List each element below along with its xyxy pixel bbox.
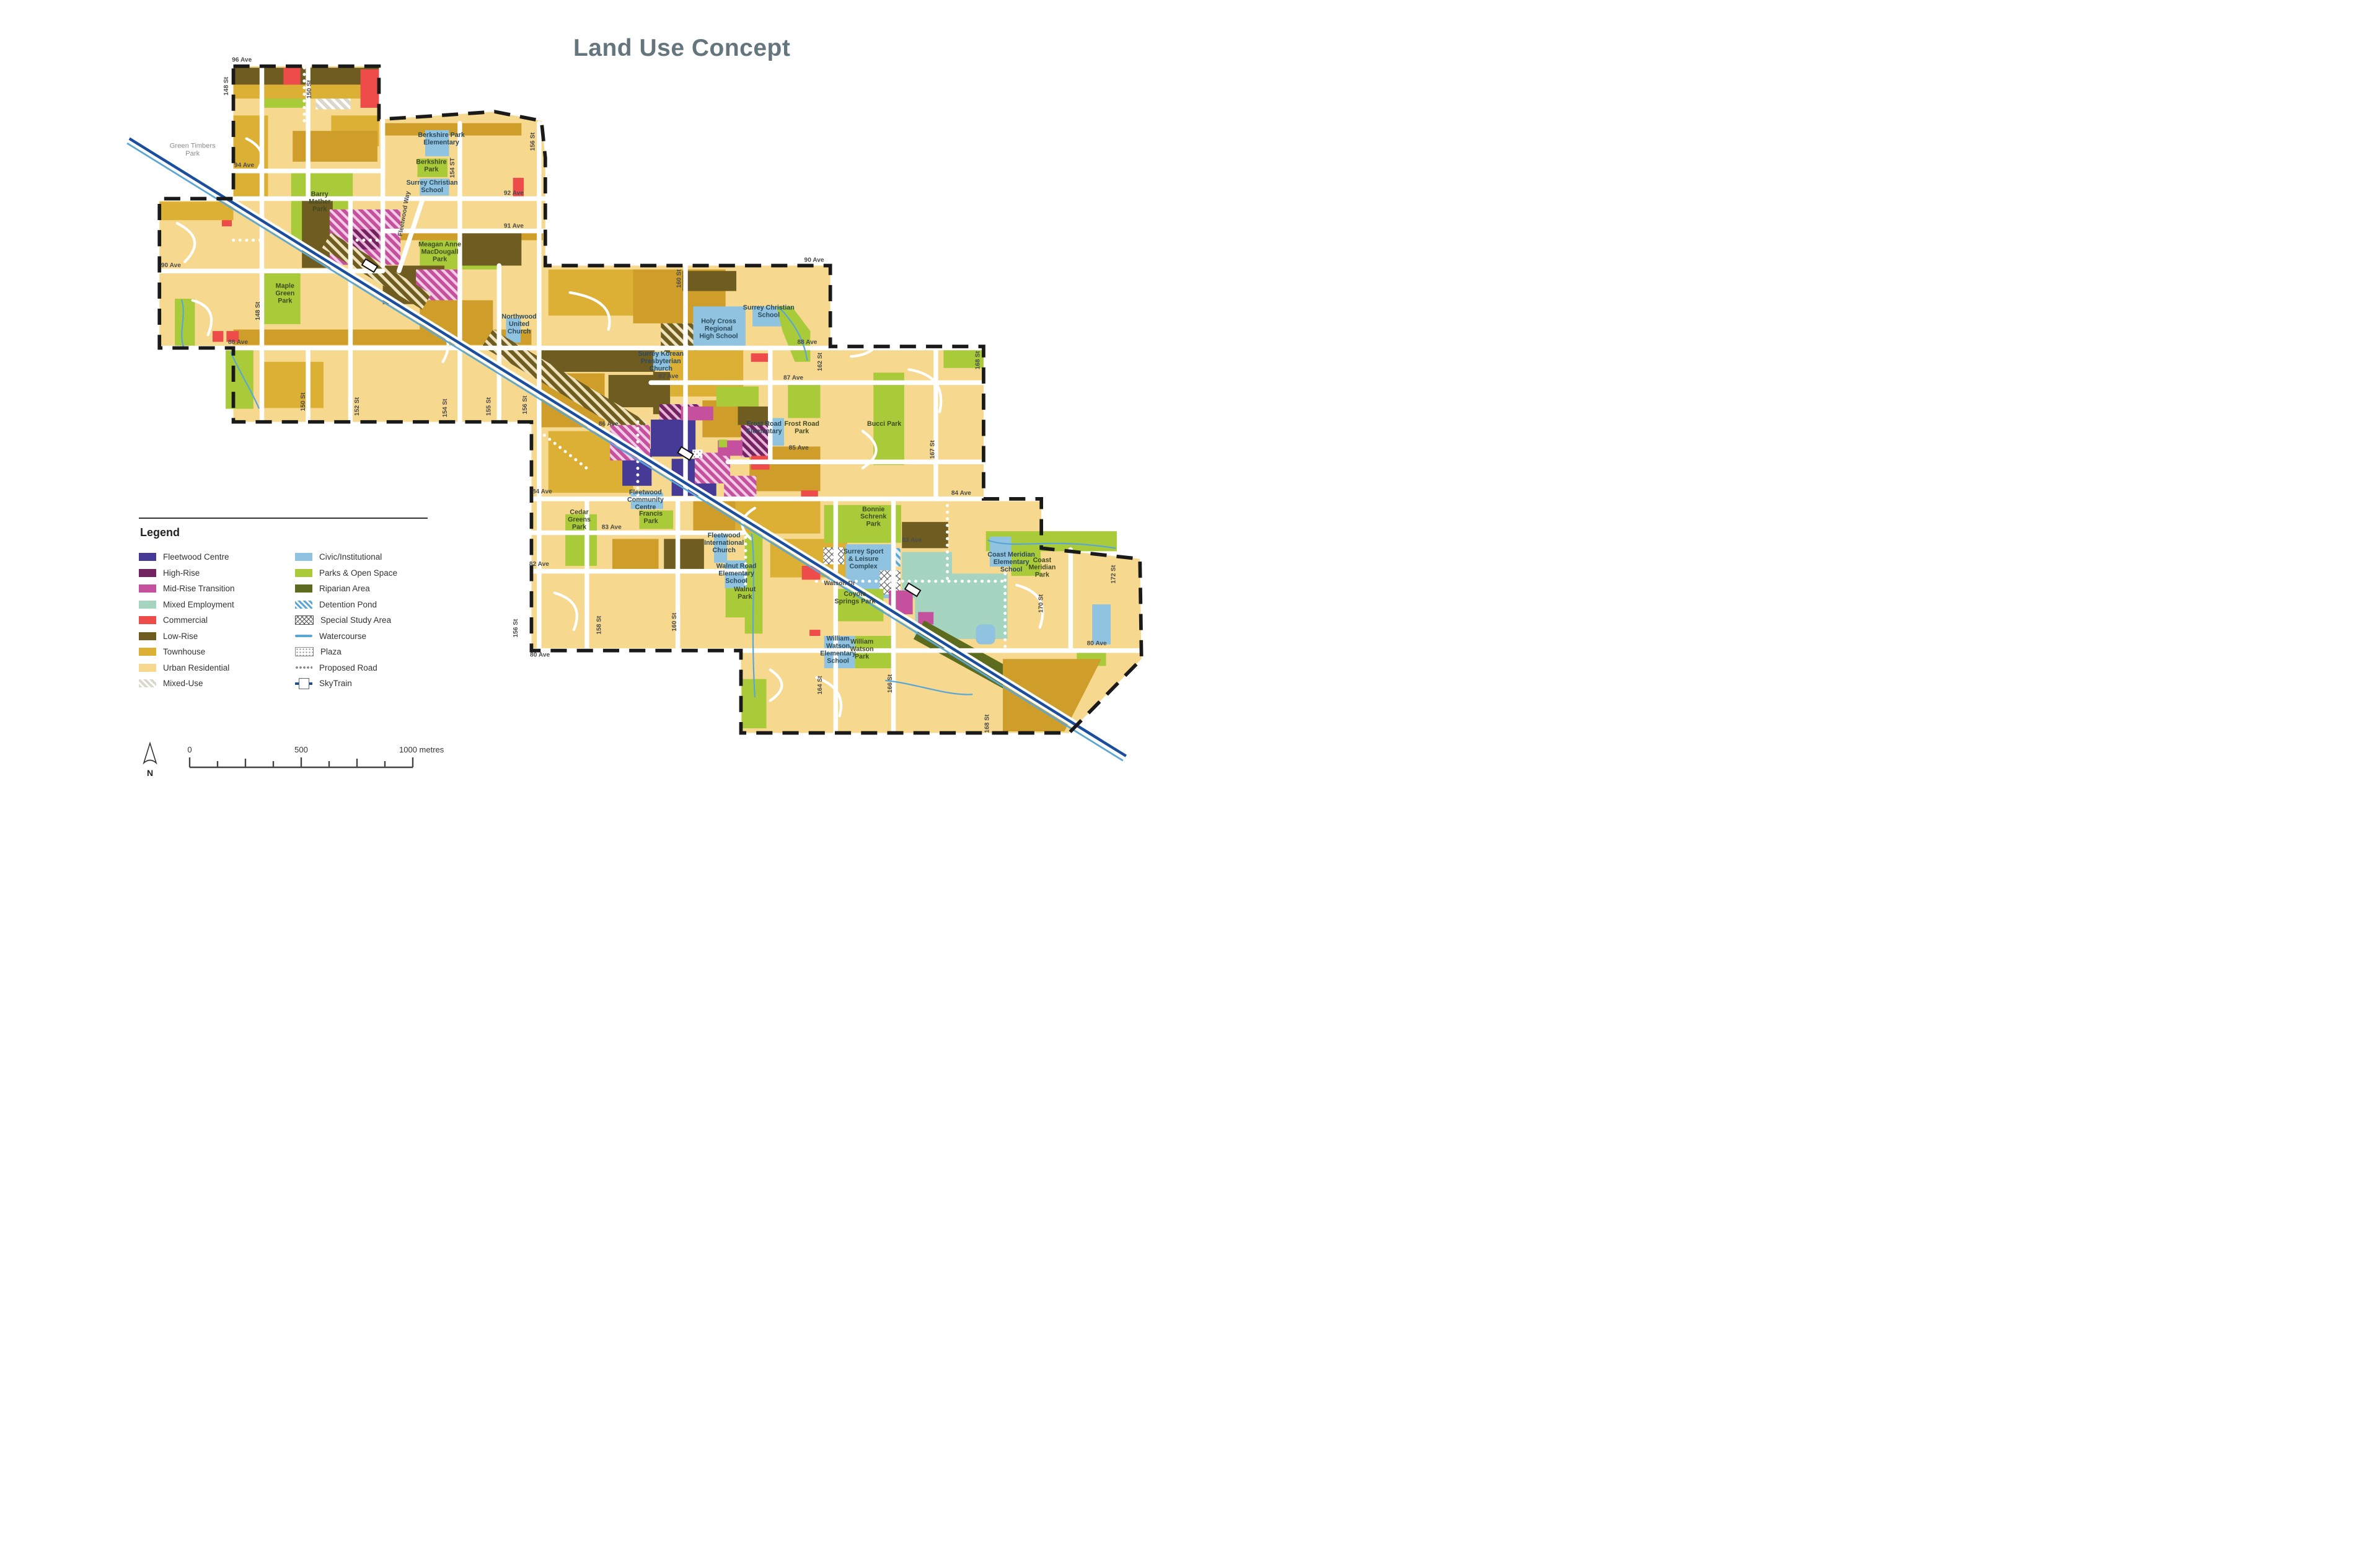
legend-label: Low-Rise bbox=[163, 632, 198, 641]
special-study-area-swatch-icon bbox=[295, 615, 314, 625]
legend-item-mixed-use: Mixed-Use bbox=[139, 676, 295, 692]
legend-title: Legend bbox=[140, 526, 428, 539]
parks-open-space-swatch-icon bbox=[295, 569, 312, 577]
street-label-156-st: 156 St bbox=[522, 395, 529, 415]
skytrain-swatch-icon bbox=[295, 679, 312, 687]
legend: Legend Fleetwood CentreHigh-RiseMid-Rise… bbox=[139, 518, 428, 692]
legend-item-fleetwood-centre: Fleetwood Centre bbox=[139, 549, 295, 565]
legend-label: Watercourse bbox=[319, 632, 366, 641]
legend-label: High-Rise bbox=[163, 568, 200, 578]
street-label-164-st: 164 St bbox=[817, 676, 824, 695]
commercial-swatch-icon bbox=[139, 616, 156, 624]
legend-label: Detention Pond bbox=[319, 600, 377, 609]
map-label-berkshire-park-elementary: Berkshire ParkElementary bbox=[418, 131, 464, 146]
legend-label: Fleetwood Centre bbox=[163, 552, 229, 562]
mid-rise-transition-swatch-icon bbox=[139, 584, 156, 593]
legend-item-special-study-area: Special Study Area bbox=[295, 612, 428, 628]
low-rise-swatch-icon bbox=[139, 632, 156, 640]
street-label-82-ave: 82 Ave bbox=[529, 561, 549, 568]
legend-label: Plaza bbox=[320, 647, 342, 656]
legend-label: Mid-Rise Transition bbox=[163, 584, 235, 593]
high-rise-swatch-icon bbox=[139, 569, 156, 577]
mixed-employment-swatch-icon bbox=[139, 601, 156, 609]
street-label-155-st: 155 St bbox=[486, 397, 493, 416]
legend-item-proposed-road: Proposed Road bbox=[295, 660, 428, 676]
street-label-83-ave: 83 Ave bbox=[902, 537, 922, 544]
street-label-92-ave: 92 Ave bbox=[504, 190, 524, 196]
legend-item-high-rise: High-Rise bbox=[139, 565, 295, 581]
legend-item-urban-residential: Urban Residential bbox=[139, 660, 295, 676]
street-label-84-ave: 84 Ave bbox=[532, 488, 552, 495]
legend-label: Parks & Open Space bbox=[319, 568, 397, 578]
street-label-85-ave: 85 Ave bbox=[789, 444, 809, 451]
page: Land Use Concept bbox=[0, 0, 1190, 782]
detention-pond-swatch-icon bbox=[295, 601, 312, 609]
street-label-160-st: 160 St bbox=[671, 612, 678, 632]
street-label-152-st: 152 St bbox=[354, 397, 361, 416]
street-label-156-st: 156 St bbox=[529, 132, 536, 151]
street-label-88-ave: 88 Ave bbox=[228, 339, 248, 346]
street-label-94-ave: 94 Ave bbox=[234, 162, 254, 169]
street-label-90-ave: 90 Ave bbox=[804, 257, 824, 263]
street-label-87-ave: 87 Ave bbox=[659, 373, 679, 380]
legend-label: Urban Residential bbox=[163, 663, 229, 672]
street-label-158-st: 158 St bbox=[596, 615, 602, 635]
scale-mid-label: 500 bbox=[294, 745, 308, 754]
north-label: N bbox=[138, 768, 162, 778]
riparian-area-swatch-icon bbox=[295, 584, 312, 593]
legend-item-civic-institutional: Civic/Institutional bbox=[295, 549, 428, 565]
proposed-road-swatch-icon bbox=[295, 666, 312, 669]
street-label-150-st: 150 St bbox=[300, 392, 307, 412]
skytrain-station-symbol-icon bbox=[299, 678, 309, 689]
scale-bar: N 0 500 1000 metres bbox=[138, 741, 485, 781]
legend-label: Civic/Institutional bbox=[319, 552, 382, 562]
legend-item-parks-open-space: Parks & Open Space bbox=[295, 565, 428, 581]
legend-label: Commercial bbox=[163, 615, 208, 625]
street-label-167-st: 167 St bbox=[929, 440, 936, 459]
legend-column-left: Fleetwood CentreHigh-RiseMid-Rise Transi… bbox=[139, 549, 295, 692]
legend-label: Riparian Area bbox=[319, 584, 370, 593]
legend-item-detention-pond: Detention Pond bbox=[295, 597, 428, 613]
urban-residential-swatch-icon bbox=[139, 664, 156, 672]
street-label-148-st: 148 St bbox=[255, 301, 262, 320]
legend-label: Townhouse bbox=[163, 647, 205, 656]
legend-item-low-rise: Low-Rise bbox=[139, 628, 295, 645]
street-label-88-ave: 88 Ave bbox=[797, 339, 817, 346]
north-arrow-icon bbox=[139, 741, 161, 766]
legend-item-townhouse: Townhouse bbox=[139, 644, 295, 660]
scale-start-label: 0 bbox=[187, 745, 192, 754]
legend-label: Mixed-Use bbox=[163, 679, 203, 688]
street-label-154-st: 154 ST bbox=[449, 157, 456, 179]
legend-item-watercourse: Watercourse bbox=[295, 628, 428, 645]
street-label-86-ave: 86 Ave bbox=[599, 421, 619, 428]
legend-label: Special Study Area bbox=[320, 615, 391, 625]
legend-item-mid-rise-transition: Mid-Rise Transition bbox=[139, 581, 295, 597]
street-label-154-st: 154 St bbox=[442, 399, 449, 418]
legend-item-commercial: Commercial bbox=[139, 612, 295, 628]
legend-item-plaza: Plaza bbox=[295, 644, 428, 660]
legend-label: Mixed Employment bbox=[163, 600, 234, 609]
street-label-91-ave: 91 Ave bbox=[504, 223, 524, 230]
fleetwood-centre-swatch-icon bbox=[139, 553, 156, 561]
street-label-168-st: 168 St bbox=[975, 351, 982, 370]
legend-item-skytrain: SkyTrain bbox=[295, 676, 428, 692]
street-label-84-ave: 84 Ave bbox=[951, 490, 971, 497]
north-arrow: N bbox=[138, 741, 162, 778]
street-label-80-ave: 80 Ave bbox=[1087, 640, 1107, 647]
street-label-148-st: 148 St bbox=[223, 77, 230, 96]
street-label-160-st: 160 St bbox=[676, 269, 683, 288]
map-label-holy-cross-regional-high-school: Holy CrossRegionalHigh School bbox=[699, 318, 738, 340]
street-label-168-st: 168 St bbox=[984, 714, 991, 733]
street-label-90-ave: 90 Ave bbox=[161, 262, 181, 269]
street-label-87-ave: 87 Ave bbox=[783, 374, 803, 381]
legend-column-right: Civic/InstitutionalParks & Open SpaceRip… bbox=[295, 549, 428, 692]
street-label-156-st: 156 St bbox=[513, 619, 519, 638]
legend-item-riparian-area: Riparian Area bbox=[295, 581, 428, 597]
map-label-bucci-park: Bucci Park bbox=[867, 420, 901, 428]
street-label-170-st: 170 St bbox=[1038, 594, 1045, 613]
map-label-frost-road-elementary: Frost RoadElementary bbox=[746, 420, 782, 435]
legend-label: SkyTrain bbox=[319, 679, 352, 688]
plaza-swatch-icon bbox=[295, 647, 314, 656]
map-label-green-timbers-park: Green TimbersPark bbox=[170, 142, 216, 157]
street-label-watson-dr: Watson Dr bbox=[824, 580, 855, 587]
street-label-83-ave: 83 Ave bbox=[602, 524, 622, 531]
street-label-150-st: 150 St bbox=[306, 80, 313, 99]
street-label-166-st: 166 St bbox=[887, 674, 894, 693]
scale-bar-graphic: 0 500 1000 metres bbox=[165, 741, 475, 778]
legend-item-mixed-employment: Mixed Employment bbox=[139, 597, 295, 613]
street-label-172-st: 172 St bbox=[1110, 565, 1117, 584]
scale-end-label: 1000 metres bbox=[399, 745, 444, 754]
legend-label: Proposed Road bbox=[319, 663, 377, 672]
watercourse-swatch-icon bbox=[295, 635, 312, 637]
mixed-use-swatch-icon bbox=[139, 679, 156, 687]
map-label-maple-green-park: MapleGreenPark bbox=[275, 283, 294, 305]
street-label-80-ave: 80 Ave bbox=[530, 652, 550, 659]
street-label-96-ave: 96 Ave bbox=[232, 56, 252, 63]
street-label-162-st: 162 St bbox=[817, 352, 824, 371]
civic-institutional-swatch-icon bbox=[295, 553, 312, 561]
townhouse-swatch-icon bbox=[139, 648, 156, 656]
